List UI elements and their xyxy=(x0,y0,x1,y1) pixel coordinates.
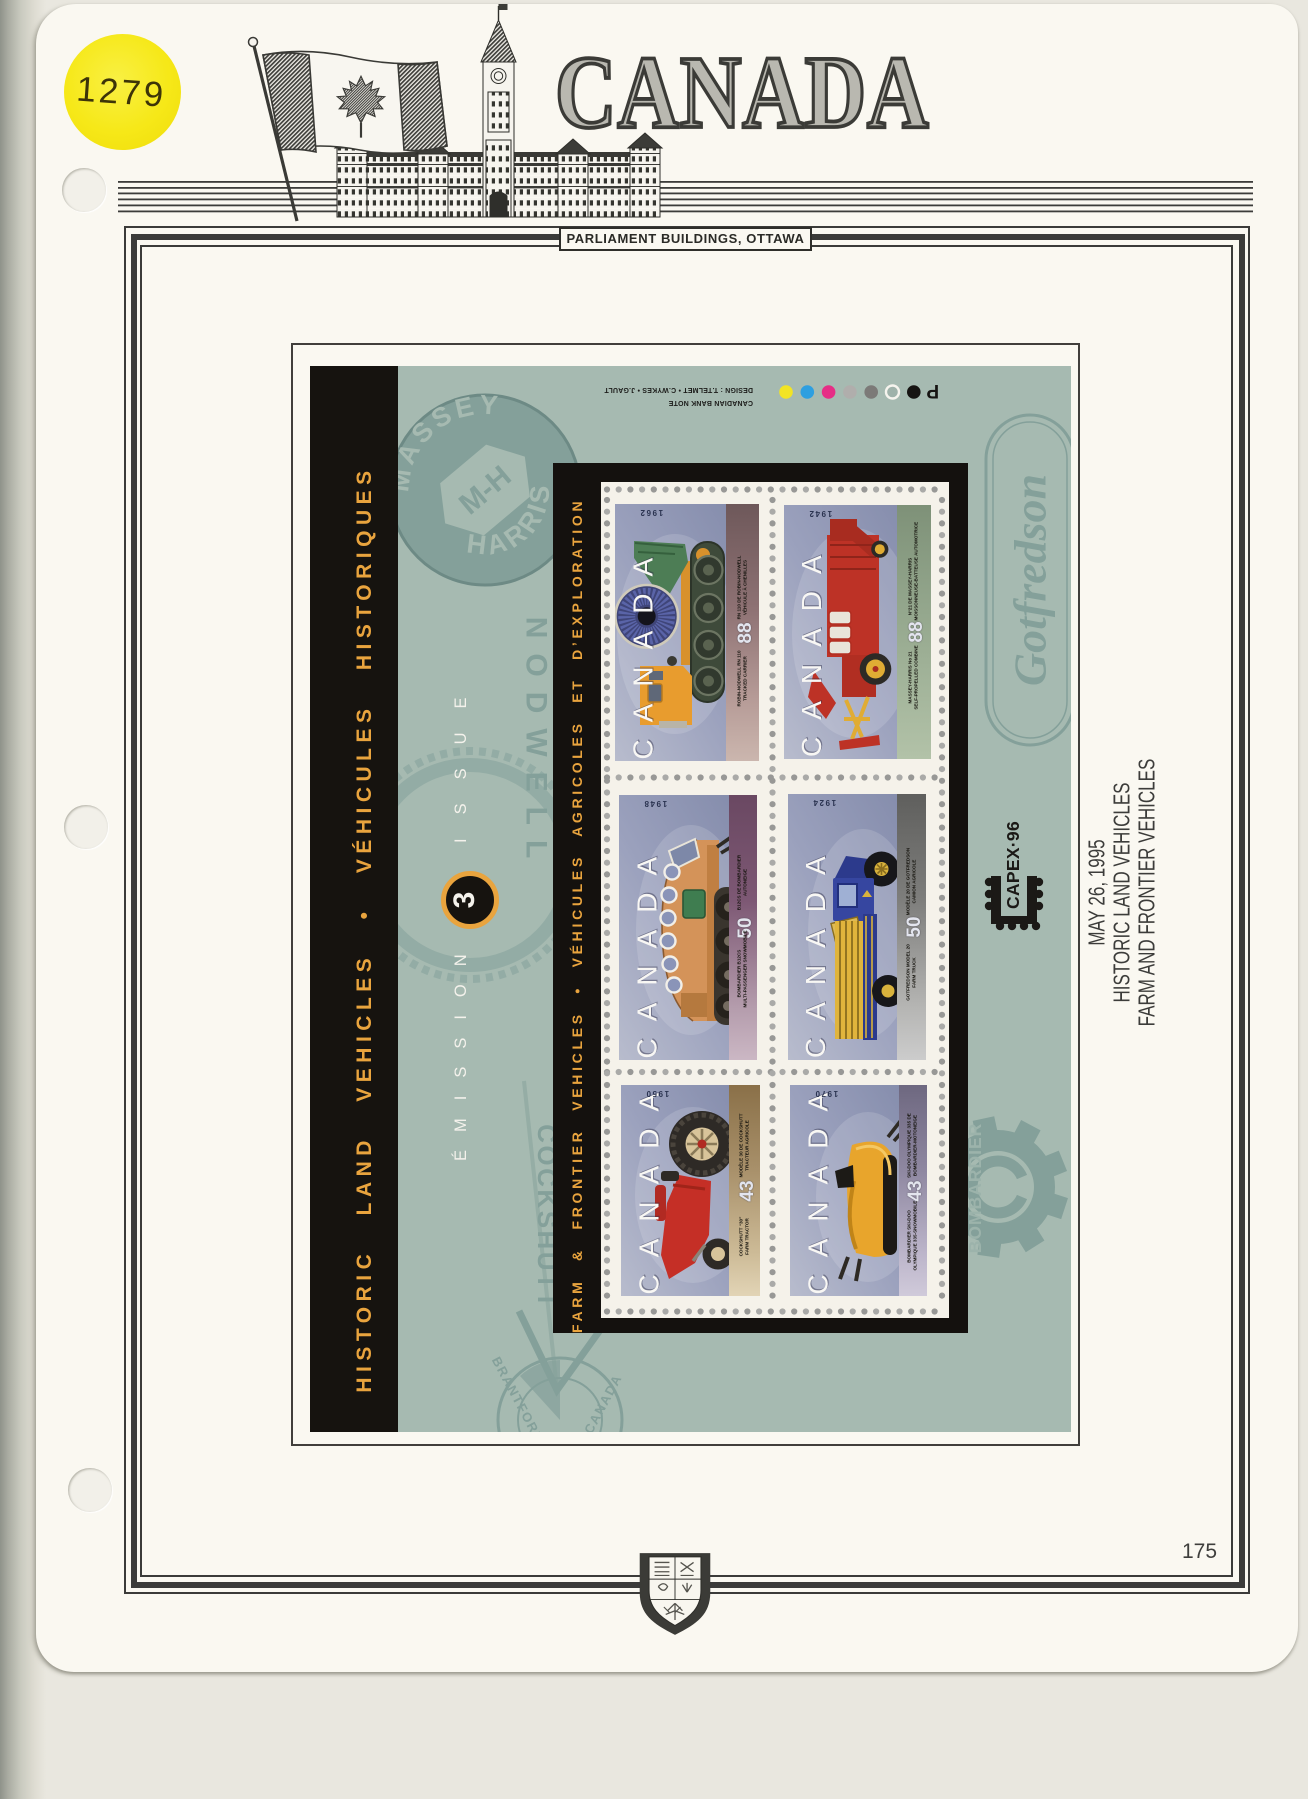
svg-text:CAPEX·96: CAPEX·96 xyxy=(1003,821,1023,909)
svg-text:BOMBARDIER: BOMBARDIER xyxy=(965,1123,985,1254)
svg-text:Gotfredson: Gotfredson xyxy=(1005,474,1056,686)
svg-text:NODWELL: NODWELL xyxy=(520,617,553,874)
svg-text:P: P xyxy=(926,380,939,401)
